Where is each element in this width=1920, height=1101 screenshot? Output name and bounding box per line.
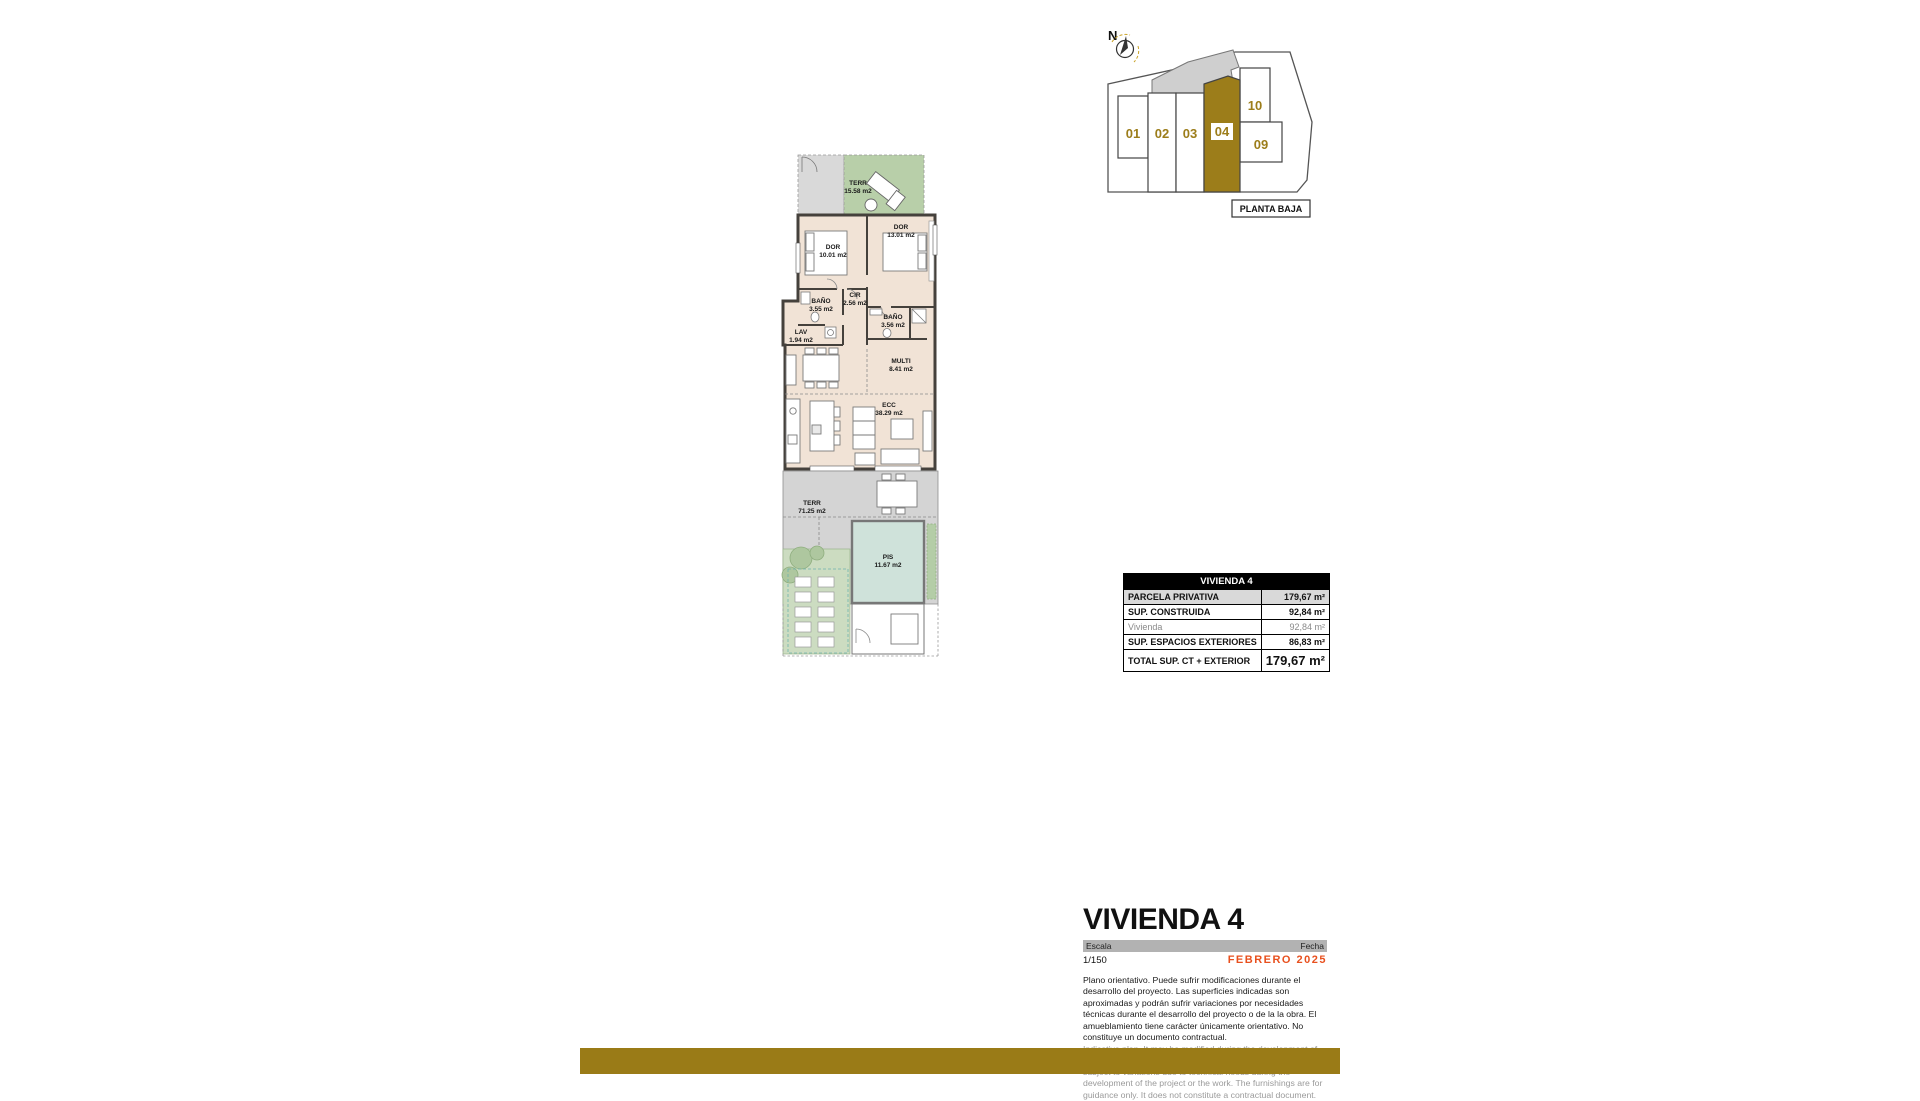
unit-number: 10 — [1248, 98, 1262, 113]
row-value: 179,67 m² — [1261, 650, 1329, 672]
side-table — [865, 199, 877, 211]
room-area: 13.01 m2 — [887, 232, 915, 239]
row-value: 92,84 m² — [1261, 620, 1329, 635]
room-area: 11.67 m2 — [874, 562, 901, 569]
room-label: DOR — [826, 244, 841, 251]
row-value: 92,84 m² — [1261, 605, 1329, 620]
room-area: 3.56 m2 — [881, 322, 905, 329]
area-summary-table: VIVIENDA 4 PARCELA PRIVATIVA 179,67 m² S… — [1123, 573, 1330, 672]
table-header: VIVIENDA 4 — [1124, 574, 1330, 590]
room-area: 3.55 m2 — [809, 306, 833, 313]
table-row: PARCELA PRIVATIVA 179,67 m² — [1124, 590, 1330, 605]
row-value: 179,67 m² — [1261, 590, 1329, 605]
room-area: 38.29 m2 — [875, 410, 903, 417]
unit-number: 01 — [1126, 126, 1140, 141]
north-compass: N — [1108, 28, 1139, 62]
row-label: PARCELA PRIVATIVA — [1124, 590, 1262, 605]
date-label: Fecha — [1300, 941, 1324, 951]
hedge — [927, 524, 936, 599]
floor-label: PLANTA BAJA — [1240, 204, 1303, 214]
scale-value: 1/150 — [1083, 955, 1107, 966]
room-area: 15.58 m2 — [844, 188, 872, 195]
date-value: FEBRERO 2025 — [1228, 954, 1327, 966]
site-key-plan: N 01 02 03 04 09 10 PLANTA BAJA — [1090, 22, 1335, 230]
unit-number-highlighted: 04 — [1215, 124, 1230, 139]
room-label: DOR — [894, 224, 909, 231]
row-label: SUP. CONSTRUIDA — [1124, 605, 1262, 620]
room-area: 10.01 m2 — [819, 252, 847, 259]
room-label: CIR — [849, 292, 861, 299]
bottom-room — [852, 604, 924, 654]
room-area: 2.56 m2 — [843, 300, 867, 307]
row-label: Vivienda — [1124, 620, 1262, 635]
table-row: SUP. CONSTRUIDA 92,84 m² — [1124, 605, 1330, 620]
scale-label: Escala — [1086, 941, 1112, 951]
unit-number: 03 — [1183, 126, 1197, 141]
disclaimer-spanish: Plano orientativo. Puede sufrir modifica… — [1083, 975, 1327, 1044]
room-label: BAÑO — [811, 296, 830, 305]
room-label: ECC — [882, 402, 896, 409]
table-row: TOTAL SUP. CT + EXTERIOR 179,67 m² — [1124, 650, 1330, 672]
room-label: PIS — [883, 554, 894, 561]
floor-plan: TERR 15.58 m2 — [755, 148, 965, 830]
room-label: TERR — [849, 180, 867, 187]
table-row: SUP. ESPACIOS EXTERIORES 86,83 m² — [1124, 635, 1330, 650]
row-label: SUP. ESPACIOS EXTERIORES — [1124, 635, 1262, 650]
row-label: TOTAL SUP. CT + EXTERIOR — [1124, 650, 1262, 672]
room-area: 8.41 m2 — [889, 366, 913, 373]
row-value: 86,83 m² — [1261, 635, 1329, 650]
unit-number: 09 — [1254, 137, 1268, 152]
unit-number: 02 — [1155, 126, 1169, 141]
floor-label-box: PLANTA BAJA — [1232, 200, 1310, 217]
table-row: Vivienda 92,84 m² — [1124, 620, 1330, 635]
room-label: BAÑO — [883, 312, 902, 321]
footer-accent-bar — [580, 1048, 1340, 1074]
room-label: TERR — [803, 500, 821, 507]
meta-bar: Escala Fecha — [1083, 940, 1327, 952]
room-label: LAV — [795, 329, 808, 336]
top-terrace: TERR 15.58 m2 — [798, 155, 924, 215]
room-area: 71.25 m2 — [798, 508, 826, 515]
sheet-title: VIVIENDA 4 — [1083, 905, 1327, 935]
room-label: MULTI — [891, 358, 911, 365]
room-area: 1.94 m2 — [789, 337, 813, 344]
